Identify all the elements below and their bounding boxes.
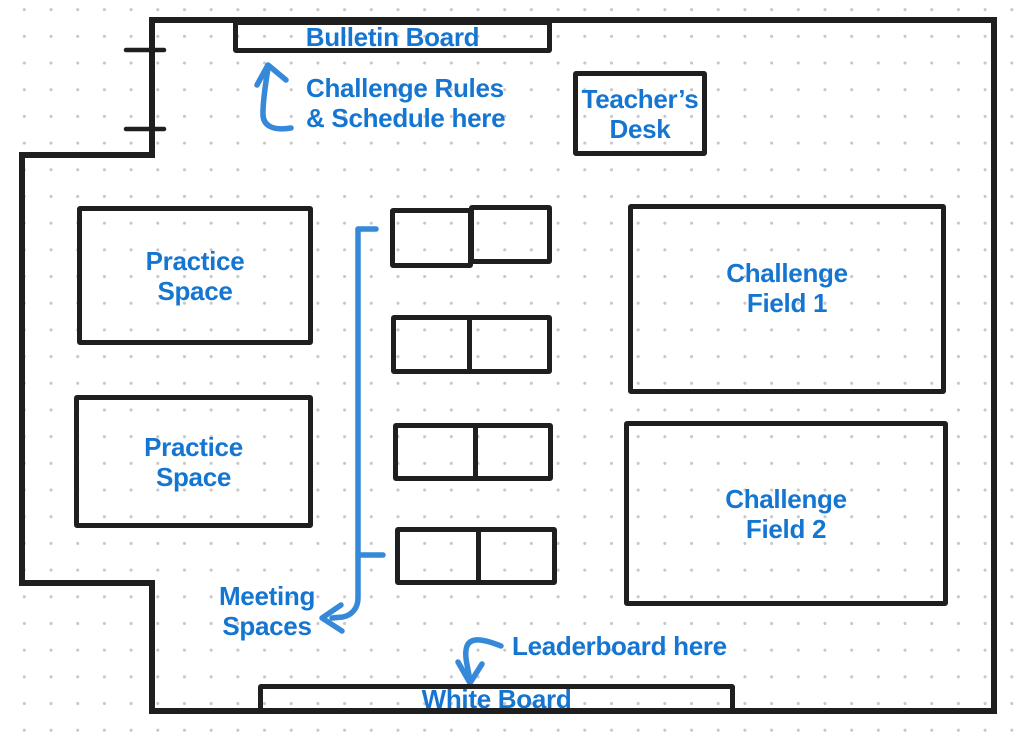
meeting-table-3 bbox=[393, 423, 553, 481]
meeting-spaces-note-line2: Spaces bbox=[197, 611, 337, 641]
table-divider bbox=[467, 318, 472, 371]
white-board-label: White Board bbox=[422, 684, 572, 714]
leaderboard-down-arrow-icon bbox=[458, 640, 501, 683]
leaderboard-note-label: Leaderboard here bbox=[512, 631, 727, 661]
door-marks bbox=[126, 50, 164, 129]
challenge-field-1-label-line1: Challenge bbox=[726, 258, 848, 288]
rules-up-arrow-icon bbox=[257, 65, 291, 129]
leaderboard-note: Leaderboard here bbox=[512, 631, 727, 661]
rules-note-line1: Challenge Rules bbox=[306, 73, 505, 103]
practice-space-top: Practice Space bbox=[77, 206, 313, 345]
meeting-table-1-right bbox=[469, 205, 552, 264]
meeting-table-1-left bbox=[390, 208, 473, 268]
challenge-field-1: Challenge Field 1 bbox=[628, 204, 946, 394]
bulletin-board-label: Bulletin Board bbox=[306, 22, 479, 52]
table-divider bbox=[473, 426, 478, 478]
meeting-table-2 bbox=[391, 315, 552, 374]
challenge-field-2-label-line2: Field 2 bbox=[746, 514, 826, 544]
practice-space-bottom-label-line2: Space bbox=[156, 462, 231, 492]
teachers-desk-label-line2: Desk bbox=[610, 114, 671, 144]
practice-space-bottom-label-line1: Practice bbox=[144, 432, 243, 462]
floor-plan-canvas: Bulletin Board Teacher’s Desk Practice S… bbox=[0, 0, 1018, 736]
meeting-table-4 bbox=[395, 527, 557, 585]
teachers-desk: Teacher’s Desk bbox=[573, 71, 707, 156]
meeting-spaces-note-line1: Meeting bbox=[197, 581, 337, 611]
challenge-field-2-label-line1: Challenge bbox=[725, 484, 847, 514]
table-divider bbox=[476, 530, 481, 582]
practice-space-top-label-line1: Practice bbox=[146, 246, 245, 276]
bulletin-board: Bulletin Board bbox=[233, 20, 552, 53]
teachers-desk-label-line1: Teacher’s bbox=[582, 84, 699, 114]
white-board: White Board bbox=[258, 684, 735, 713]
challenge-field-2: Challenge Field 2 bbox=[624, 421, 948, 606]
meeting-spaces-note: Meeting Spaces bbox=[197, 581, 337, 641]
practice-space-bottom: Practice Space bbox=[74, 395, 313, 528]
practice-space-top-label-line2: Space bbox=[157, 276, 232, 306]
rules-note: Challenge Rules & Schedule here bbox=[306, 73, 505, 133]
rules-note-line2: & Schedule here bbox=[306, 103, 505, 133]
challenge-field-1-label-line2: Field 1 bbox=[747, 288, 827, 318]
meeting-spaces-bracket-arrow-icon bbox=[322, 229, 383, 631]
